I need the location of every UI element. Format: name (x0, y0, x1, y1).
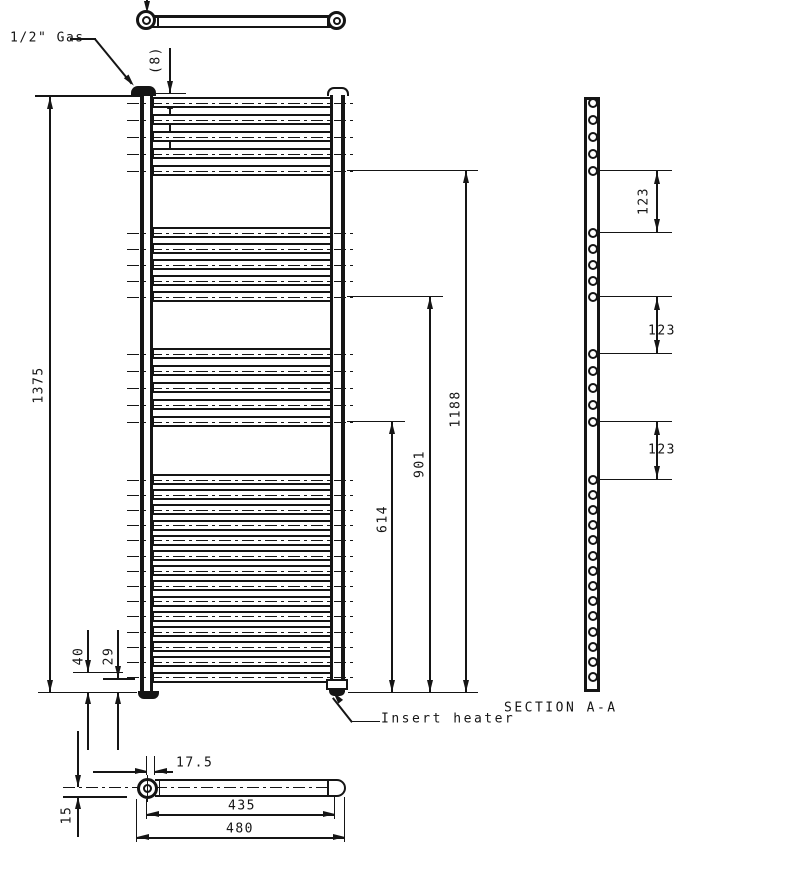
dim901-arrowhead-icon (427, 680, 433, 692)
section-hole (588, 672, 598, 682)
right-top-cap (327, 87, 349, 96)
connector-cross-vertical (147, 775, 148, 802)
tube-centerline (127, 233, 357, 234)
insert-heater-boss (326, 679, 348, 690)
section-hole (588, 149, 598, 159)
top-view-left-connector-bore (142, 16, 151, 25)
section-hole (588, 566, 598, 576)
tube-centerline (127, 586, 357, 587)
section-hole (588, 520, 598, 530)
tube-centerline (127, 405, 357, 406)
tube-centerline (127, 297, 357, 298)
top-view-bar-bottom (152, 26, 332, 29)
baseline-right (348, 692, 478, 694)
top-view-bar-top (152, 15, 332, 18)
top-view-bar-tick-left (157, 15, 159, 28)
dim1375-arrowhead-icon (47, 680, 53, 692)
tube-centerline (127, 495, 357, 496)
ref-tick-29 (103, 678, 135, 680)
dim901-line (429, 296, 431, 692)
bottom-tube-tick (159, 779, 161, 796)
dim-end-offset: 17.5 (176, 756, 213, 771)
dim-overall-height: 1375 (32, 366, 47, 403)
section-hole (588, 260, 598, 270)
tube-centerline (127, 540, 357, 541)
tube-centerline (127, 371, 357, 372)
tube-centerline (127, 281, 357, 282)
tube-centerline (127, 171, 357, 172)
dim29-arrowhead-icon (115, 666, 121, 678)
dim15-tail-lower (77, 797, 79, 837)
section-ext-6 (600, 479, 672, 481)
ext-line-1188 (347, 170, 478, 172)
section-hole (588, 417, 598, 427)
dim29-arrowhead-icon (115, 692, 121, 704)
tube-centerline (127, 571, 357, 572)
dim435-arrowhead-icon (147, 811, 159, 817)
dim175-arrowhead-icon (135, 768, 147, 774)
dim1188-line (465, 170, 467, 692)
tube-centerline (127, 249, 357, 250)
dim123c-arrowhead-icon (654, 466, 660, 478)
dim8-arrowhead-icon (167, 81, 173, 93)
tube-centerline (127, 632, 357, 633)
dim435-arrowhead-icon (323, 811, 335, 817)
section-hole (588, 475, 598, 485)
dim15-arrowhead-icon (75, 775, 81, 787)
dim1375-line (49, 97, 51, 692)
section-hole (588, 581, 598, 591)
dim1375-arrowhead-icon (47, 97, 53, 109)
dim614-arrowhead-icon (389, 422, 395, 434)
bottom-tube-top (155, 779, 331, 781)
tube-centerline (127, 265, 357, 266)
section-hole (588, 166, 598, 176)
tube-centerline (127, 662, 357, 663)
section-hole (588, 657, 598, 667)
tube-centerline (127, 525, 357, 526)
dim901-arrowhead-icon (427, 297, 433, 309)
insert-heater-leader (352, 721, 380, 723)
section-hole (588, 292, 598, 302)
section-ext-2 (600, 232, 672, 234)
tube-centerline (127, 556, 357, 557)
section-hole (588, 611, 598, 621)
dim480-arrowhead-icon (333, 834, 345, 840)
dim614-line (391, 421, 393, 692)
tube-centerline (127, 601, 357, 602)
right-riser-outer (341, 95, 345, 692)
section-hole (588, 490, 598, 500)
dim614-arrowhead-icon (389, 680, 395, 692)
dim123b-arrowhead-icon (654, 340, 660, 352)
section-ext-5 (600, 421, 672, 423)
dim-bottom-40: 40 (72, 647, 87, 666)
section-hole (588, 596, 598, 606)
dim-height-901: 901 (413, 450, 428, 478)
section-hole (588, 627, 598, 637)
tube-centerline (127, 103, 357, 104)
tube-centerline (127, 510, 357, 511)
section-ext-3 (600, 296, 672, 298)
section-hole (588, 349, 598, 359)
dim40-arrowhead-icon (85, 692, 91, 704)
section-hole (588, 228, 598, 238)
tube-centerline (127, 154, 357, 155)
left-riser-inner (150, 95, 153, 692)
dim1188-arrowhead-icon (463, 171, 469, 183)
dim435-line (147, 814, 335, 816)
section-hole (588, 505, 598, 515)
left-riser-outer (140, 95, 144, 692)
drawing-sheet: 1/2" Gas (8) 1375 1188 901 614 (0, 0, 801, 880)
right-riser-inner (330, 95, 333, 692)
section-hole (588, 366, 598, 376)
dim480-arrowhead-icon (137, 834, 149, 840)
section-hole (588, 98, 598, 108)
tube-centerline (127, 616, 357, 617)
left-bottom-cap (138, 691, 160, 699)
dim-gap-3: 123 (648, 443, 676, 458)
dim-depth-15: 15 (60, 806, 75, 825)
tube-centerline (127, 354, 357, 355)
ext-line-614 (347, 421, 405, 423)
bottom-view-centerline (63, 787, 342, 788)
dim123a-arrowhead-icon (654, 219, 660, 231)
tube-centerline (127, 647, 357, 648)
tube-centerline (127, 677, 357, 678)
dim-gap-2: 123 (648, 324, 676, 339)
section-hole (588, 400, 598, 410)
gas-leader-line (70, 38, 96, 40)
dim480-line (137, 837, 345, 839)
dim123a-arrowhead-icon (654, 172, 660, 184)
section-ext-1 (600, 170, 672, 172)
dim-gap-1: 123 (637, 187, 652, 215)
dim-height-614: 614 (376, 505, 391, 533)
section-hole (588, 642, 598, 652)
section-hole (588, 535, 598, 545)
tube-centerline (127, 388, 357, 389)
section-hole (588, 132, 598, 142)
bottom-tube-bottom (155, 795, 331, 797)
section-hole (588, 551, 598, 561)
dim1188-arrowhead-icon (463, 680, 469, 692)
dim15-ref-line (63, 796, 127, 798)
dim-overall-width: 480 (226, 822, 254, 837)
tube-centerline (127, 137, 357, 138)
tube-centerline (127, 480, 357, 481)
top-view-right-connector-bore (333, 17, 342, 26)
section-hole (588, 115, 598, 125)
dim-bottom-29: 29 (102, 647, 117, 666)
dim-height-1188: 1188 (449, 390, 464, 427)
dim123c-arrowhead-icon (654, 423, 660, 435)
dim-centres-width: 435 (228, 799, 256, 814)
bottom-right-cap (327, 779, 346, 797)
dim175-tail (155, 771, 173, 773)
section-hole (588, 383, 598, 393)
dim175-tick-a (146, 756, 147, 775)
section-title: SECTION A-A (504, 701, 618, 716)
section-hole (588, 276, 598, 286)
insert-heater-label: Insert heater (381, 712, 515, 727)
section-ext-4 (600, 353, 672, 355)
tube-centerline (127, 120, 357, 121)
section-hole (588, 244, 598, 254)
tube-centerline (127, 422, 357, 423)
dim-top-offset: (8) (149, 46, 164, 74)
dim123b-arrowhead-icon (654, 298, 660, 310)
